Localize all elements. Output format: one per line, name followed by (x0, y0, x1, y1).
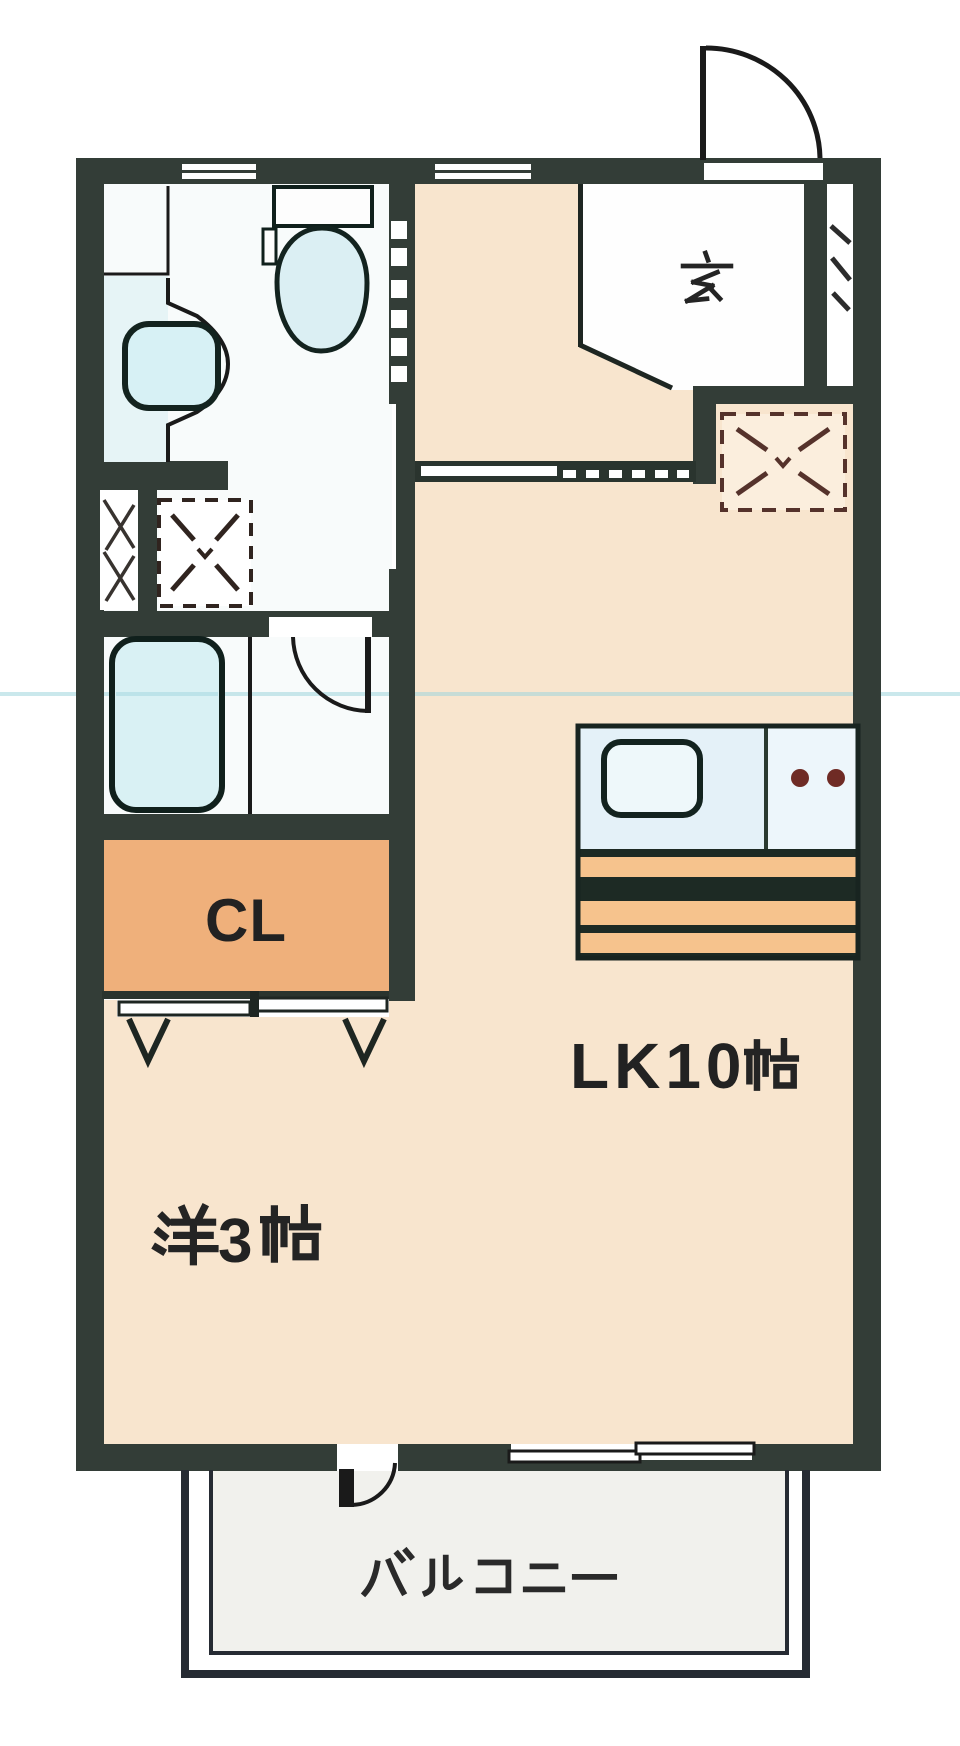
svg-text:CL: CL (205, 887, 287, 954)
svg-text:LK10: LK10 (570, 1030, 747, 1102)
svg-text:3: 3 (218, 1207, 252, 1276)
